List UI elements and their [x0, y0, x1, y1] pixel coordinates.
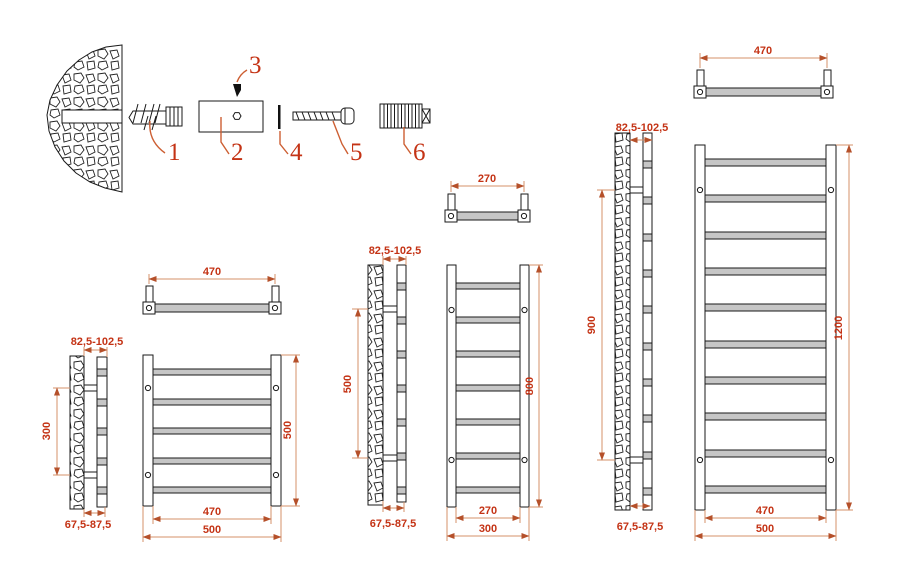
dim-medium-wall-offset-bottom: 67,5-87,5: [370, 518, 416, 530]
anchor-plug: [129, 104, 182, 130]
part-number-3: 3: [249, 52, 262, 79]
dim-small-wall-offset-bottom: 67,5-87,5: [65, 519, 111, 531]
bracket-arm: [84, 385, 97, 391]
dim-small-overall-width: 500: [203, 524, 221, 536]
dim-medium-plan-width: 270: [478, 173, 496, 185]
dim-small-rung-width: 470: [203, 506, 221, 518]
mount-hole: [145, 385, 150, 390]
bushing: [380, 104, 430, 128]
pin: [278, 105, 281, 129]
dim-medium-overall-width: 300: [479, 523, 497, 535]
mounting-plate: [199, 101, 263, 132]
mount-hole: [449, 307, 454, 312]
dim-small-height: 500: [282, 421, 294, 439]
ladder-medium: 270 82,5-102,5 500 67,5-87,5: [342, 173, 543, 541]
dim-large-height: 1200: [833, 316, 845, 340]
ladder-large-plan-view: 470: [694, 45, 833, 98]
ladder-small-side-view: 82,5-102,5 300 67,5-87,5: [41, 336, 123, 531]
hardware-section: 1 2 3 4 5 6: [47, 45, 430, 192]
ladder-medium-side-view: 82,5-102,5 500 67,5-87,5: [342, 245, 421, 530]
dim-small-wall-offset-top: 82,5-102,5: [71, 336, 124, 348]
bracket-arm: [630, 187, 643, 193]
ladder-large-side-view: 82,5-102,5 900 67,5-87,5: [586, 122, 668, 533]
ladder-large: 470 82,5-102,5 900 67,5-87,5: [586, 45, 853, 541]
mount-hole: [697, 187, 702, 192]
mount-hole: [828, 187, 833, 192]
mount-hole: [522, 457, 527, 462]
ladder-large-front-view: 1200 470 500: [695, 145, 853, 541]
mount-hole: [273, 385, 278, 390]
mount-hole: [828, 457, 833, 462]
dim-large-overall-width: 500: [756, 523, 774, 535]
dim-medium-wall-offset-top: 82,5-102,5: [369, 245, 422, 257]
dim-large-plan-width: 470: [754, 45, 772, 57]
ladder-medium-front-view: 800 270 300: [447, 265, 543, 541]
ladder-small-plan-view: 470: [143, 266, 281, 314]
leader-3: [237, 70, 247, 82]
mount-hole: [449, 457, 454, 462]
dim-large-bracket-spacing: 900: [586, 316, 598, 334]
mount-hole: [145, 472, 150, 477]
dim-small-bracket-spacing: 300: [41, 422, 53, 440]
part-number-1: 1: [168, 139, 181, 166]
leader-6: [404, 127, 411, 154]
leader-1: [150, 121, 165, 153]
mount-hole: [697, 457, 702, 462]
dim-large-wall-offset-bottom: 67,5-87,5: [617, 521, 663, 533]
leader-5: [333, 121, 348, 154]
wall-cross-section: [47, 45, 122, 192]
dim-medium-height: 800: [524, 377, 536, 395]
leader-4: [280, 131, 288, 154]
bracket-arm: [84, 472, 97, 478]
technical-drawing: 1 2 3 4 5 6: [0, 0, 900, 575]
drill-hole: [62, 110, 122, 123]
plate-hole: [233, 113, 241, 120]
part-number-4: 4: [290, 139, 303, 166]
dim-medium-bracket-spacing: 500: [342, 375, 354, 393]
part-number-5: 5: [350, 139, 363, 166]
dim-small-plan-width: 470: [203, 266, 221, 278]
dim-large-rung-width: 470: [756, 505, 774, 517]
long-screw: [293, 108, 354, 124]
mount-hole: [273, 472, 278, 477]
part-number-2: 2: [231, 139, 244, 166]
set-screw: [233, 84, 241, 97]
bracket-arm: [630, 457, 643, 463]
mount-hole: [522, 307, 527, 312]
bracket-arm: [383, 306, 397, 312]
dim-medium-rung-width: 270: [479, 505, 497, 517]
bracket-arm: [383, 455, 397, 461]
part-number-6: 6: [413, 139, 426, 166]
drawing-svg: 1 2 3 4 5 6: [0, 0, 900, 575]
ladder-medium-plan-view: 270: [445, 173, 530, 222]
dim-large-wall-offset-top: 82,5-102,5: [616, 122, 669, 134]
ladder-small-front-view: 500 470 500: [143, 355, 300, 542]
ladder-small: 470 82,5-102,5 300 67,5-87,5: [41, 266, 300, 542]
